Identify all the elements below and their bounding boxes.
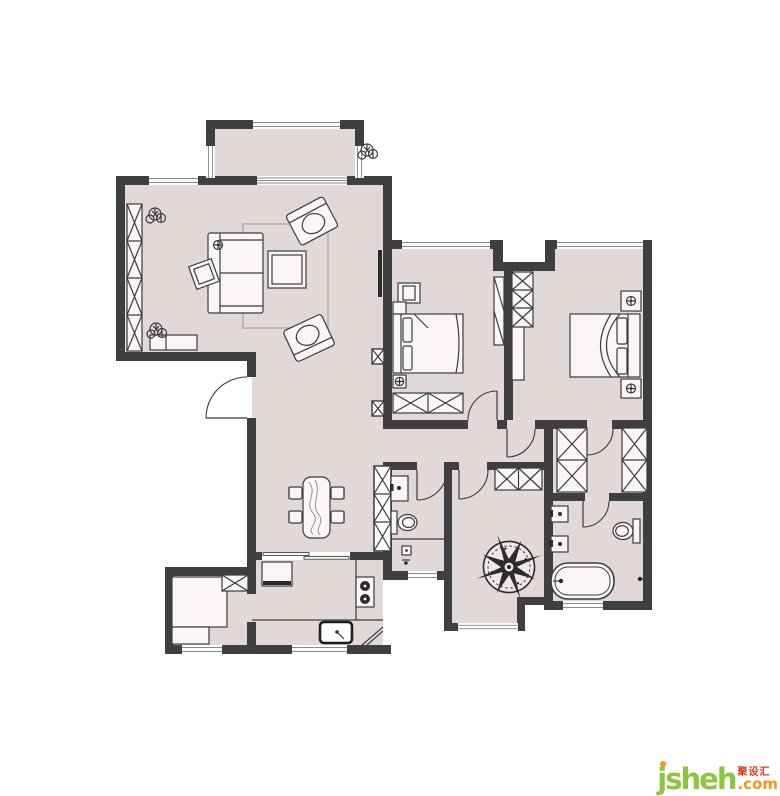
wardrobe — [622, 428, 647, 492]
bed — [393, 314, 463, 373]
coffee-table — [268, 251, 306, 288]
sliding-door — [257, 176, 347, 185]
watermark-logo: jsheh 聚设汇 .com — [657, 768, 778, 792]
logo-brand-text: jsheh — [657, 768, 735, 791]
dresser — [398, 283, 420, 303]
tall-cabinet — [512, 327, 524, 380]
wardrobe — [393, 393, 463, 413]
hall-cabinet — [495, 468, 542, 490]
dining-chair — [331, 511, 344, 523]
wardrobe — [512, 272, 533, 327]
dining-chair — [331, 487, 344, 499]
bathtub — [551, 563, 614, 599]
logo-tld-text: .com — [737, 778, 778, 792]
gas-stove — [356, 577, 374, 607]
floor-drain — [402, 546, 411, 555]
dining-chair — [289, 511, 302, 523]
nightstand — [621, 379, 641, 398]
wash-basin — [550, 536, 569, 552]
nightstand — [621, 291, 641, 311]
tv — [378, 250, 382, 297]
dining-chair — [289, 487, 302, 499]
bed — [570, 314, 640, 377]
wash-basin — [390, 476, 408, 501]
utility-cabinet — [222, 575, 248, 591]
structural-column — [372, 401, 384, 416]
tv-cabinet — [127, 204, 142, 351]
light-well-notch — [503, 240, 545, 262]
fridge — [262, 562, 292, 586]
wardrobe — [557, 428, 587, 492]
kitchen-sink — [320, 622, 352, 643]
nightstand — [393, 302, 406, 314]
floor-lamp — [214, 241, 223, 250]
floor-plan-page: jsheh 聚设汇 .com — [0, 0, 780, 796]
bench — [150, 335, 197, 350]
dining-table — [303, 477, 330, 538]
wash-basin — [550, 506, 569, 522]
structural-column — [372, 349, 384, 364]
nightstand — [393, 375, 406, 388]
tall-cabinet — [494, 277, 504, 345]
duct-shaft — [374, 466, 391, 551]
entry-door — [206, 377, 247, 418]
sliding-door — [262, 552, 350, 560]
floor-plan-drawing — [0, 0, 780, 796]
